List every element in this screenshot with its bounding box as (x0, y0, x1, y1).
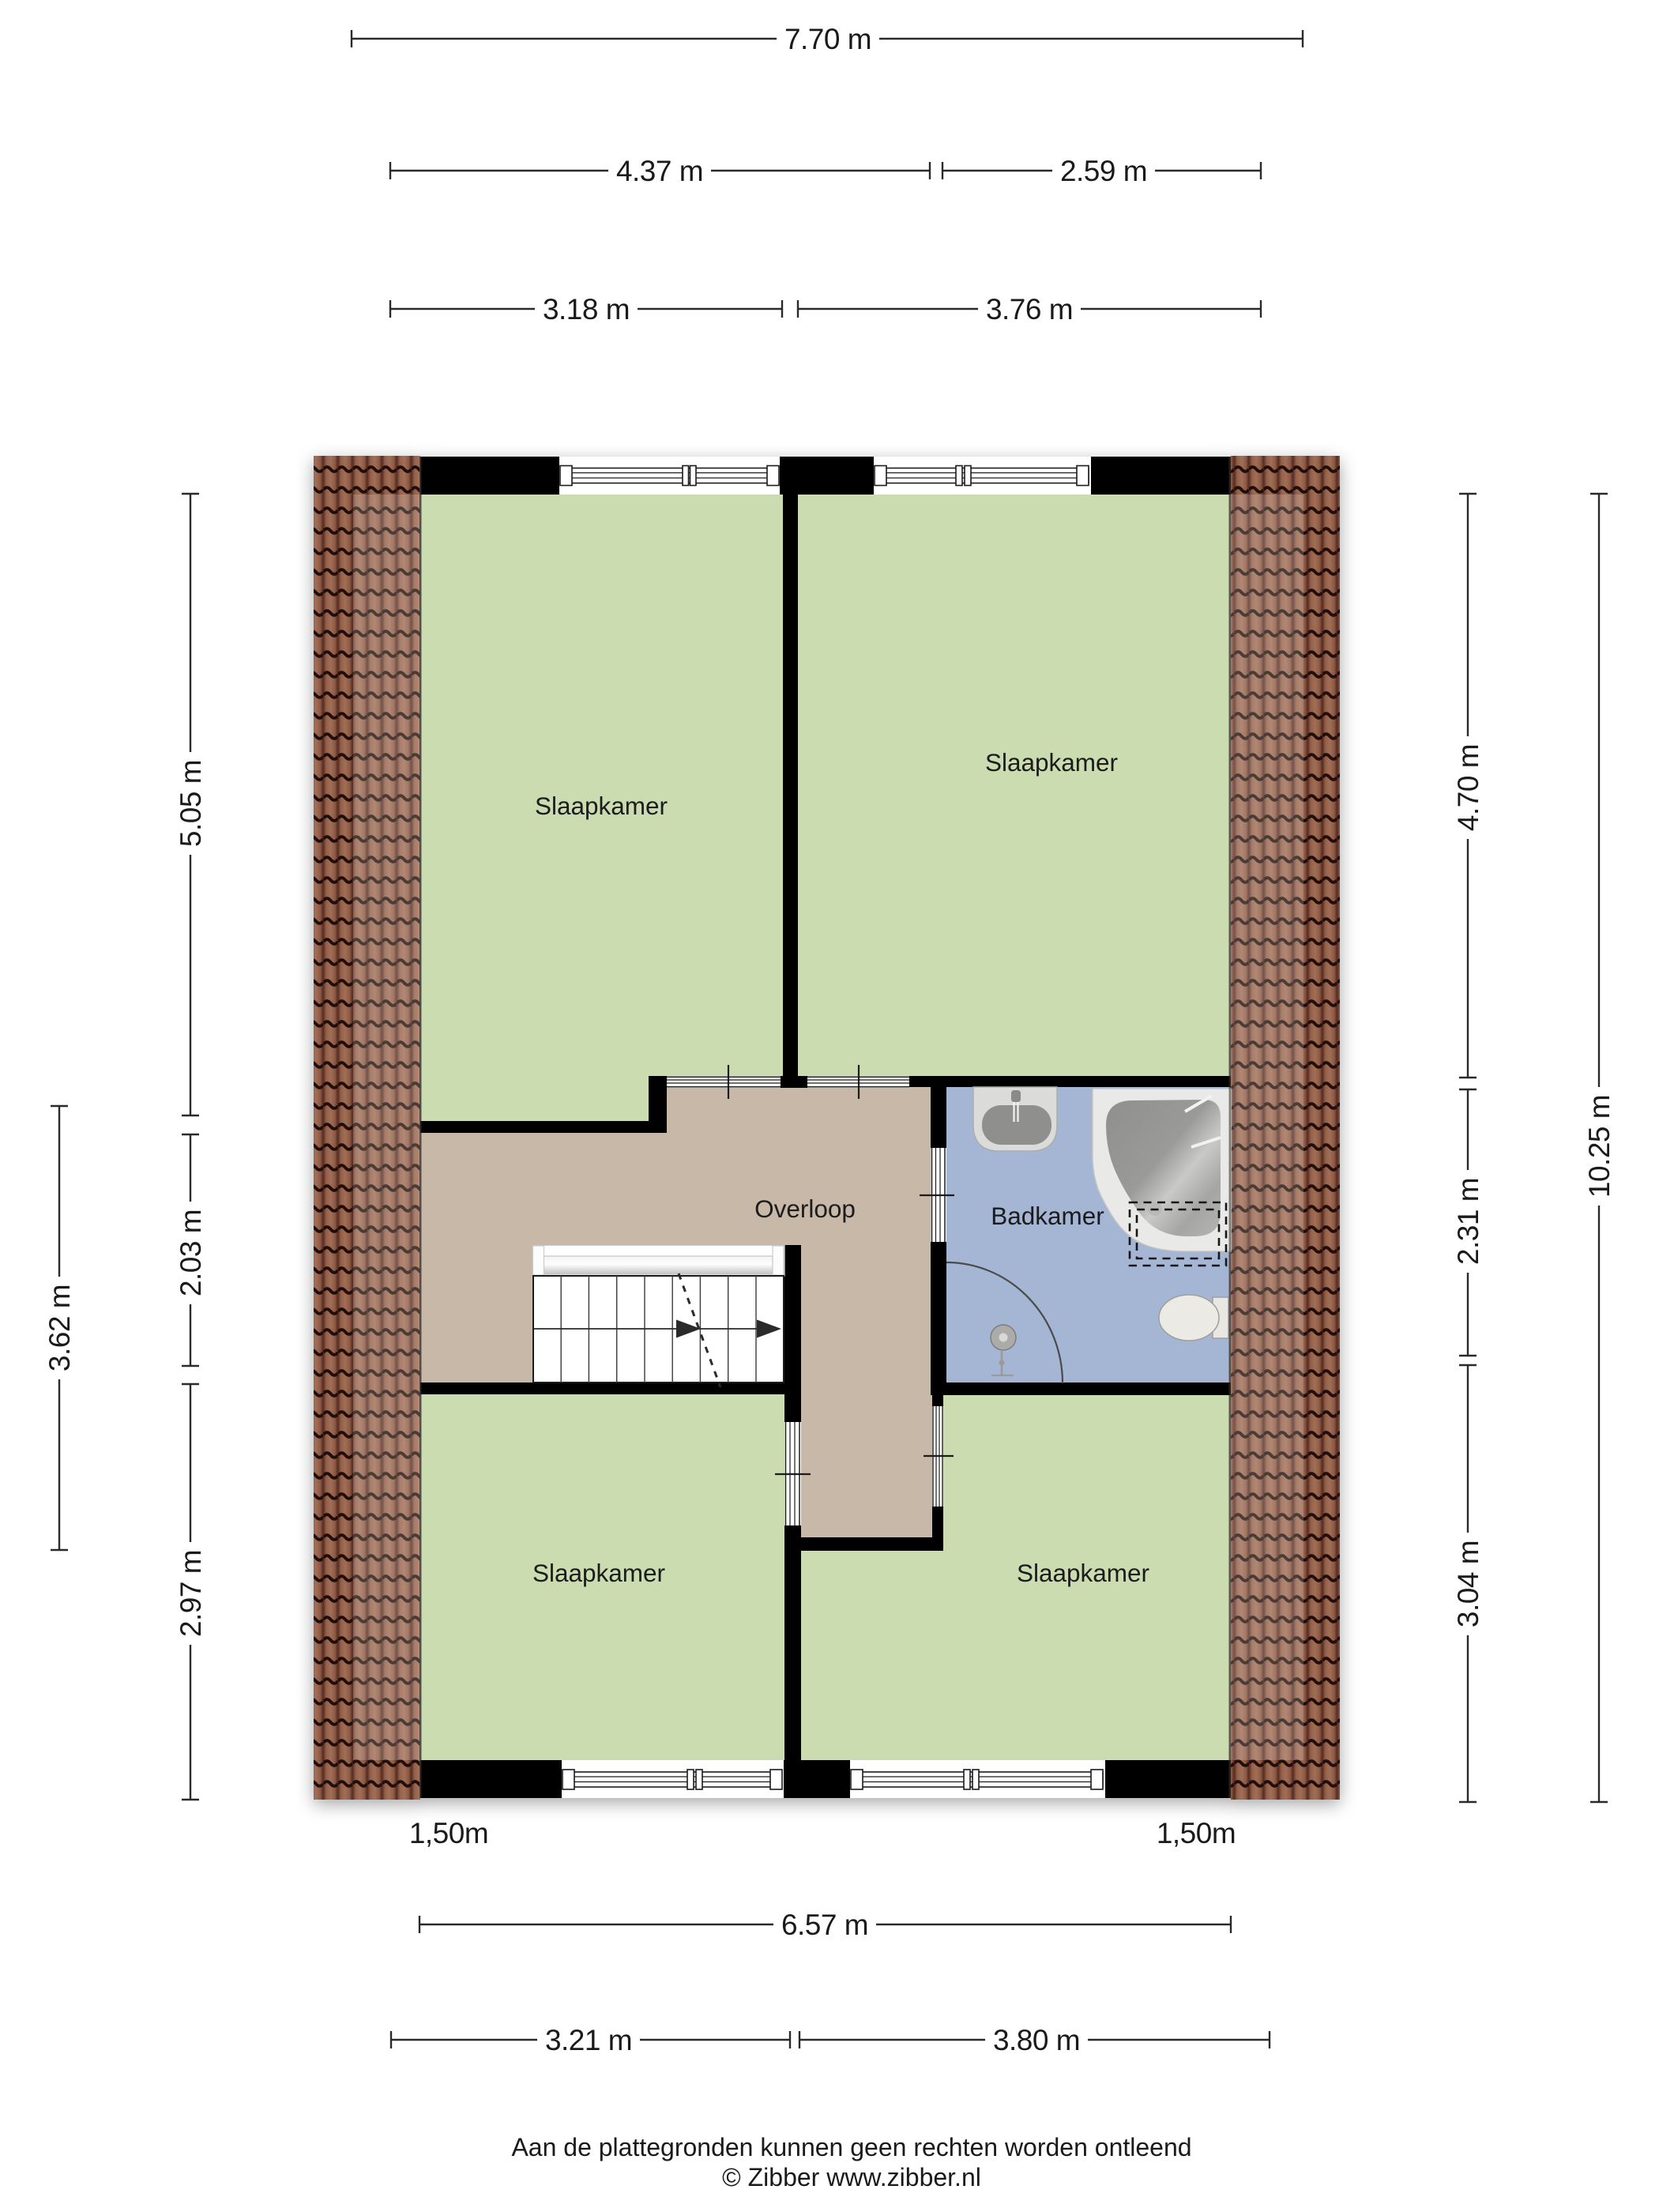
svg-text:2.97 m: 2.97 m (175, 1550, 207, 1637)
svg-text:3.76 m: 3.76 m (986, 293, 1073, 325)
svg-text:Overloop: Overloop (754, 1194, 856, 1223)
svg-text:1,50m: 1,50m (1157, 1817, 1236, 1849)
svg-text:7.70 m: 7.70 m (784, 23, 871, 55)
svg-text:Slaapkamer: Slaapkamer (532, 1559, 665, 1587)
svg-text:Aan de plattegronden kunnen ge: Aan de plattegronden kunnen geen rechten… (511, 2133, 1191, 2161)
svg-text:2.03 m: 2.03 m (175, 1209, 207, 1296)
svg-text:Slaapkamer: Slaapkamer (985, 748, 1118, 777)
svg-text:3.62 m: 3.62 m (43, 1285, 76, 1371)
svg-text:3.04 m: 3.04 m (1452, 1540, 1484, 1627)
svg-text:Slaapkamer: Slaapkamer (535, 792, 668, 820)
svg-text:Badkamer: Badkamer (991, 1202, 1104, 1230)
svg-text:2.59 m: 2.59 m (1060, 155, 1147, 187)
svg-text:1,50m: 1,50m (409, 1817, 488, 1849)
svg-text:3.80 m: 3.80 m (993, 2024, 1080, 2056)
svg-text:© Zibber www.zibber.nl: © Zibber www.zibber.nl (722, 2163, 981, 2191)
svg-text:Slaapkamer: Slaapkamer (1017, 1559, 1149, 1587)
svg-text:2.31 m: 2.31 m (1452, 1178, 1484, 1265)
svg-text:3.18 m: 3.18 m (543, 293, 630, 325)
svg-text:10.25 m: 10.25 m (1583, 1095, 1616, 1198)
svg-text:6.57 m: 6.57 m (781, 1909, 868, 1941)
svg-text:5.05 m: 5.05 m (175, 760, 207, 847)
svg-text:3.21 m: 3.21 m (545, 2024, 632, 2056)
svg-text:4.37 m: 4.37 m (616, 155, 703, 187)
svg-text:4.70 m: 4.70 m (1452, 744, 1484, 831)
